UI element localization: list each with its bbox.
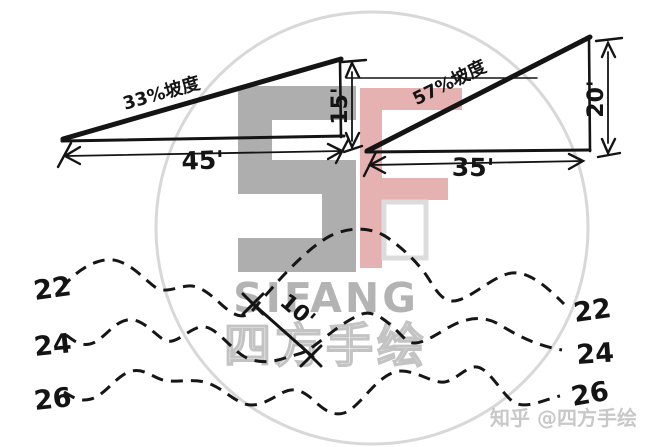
left-base-label: 45' bbox=[181, 145, 224, 175]
right-height-label: 20' bbox=[584, 80, 609, 117]
right-base-label: 35' bbox=[452, 153, 495, 183]
contour-label-right-24: 24 bbox=[575, 337, 615, 371]
sketch-canvas: S F SIFANG 四方手绘 33%坡度 45' 15' bbox=[0, 0, 654, 447]
watermark: S F SIFANG 四方手绘 bbox=[156, 12, 588, 444]
left-height-label: 15' bbox=[328, 87, 353, 124]
attribution-watermark: 知乎 @四方手绘 bbox=[490, 406, 637, 430]
left-height-dim-arrow-up bbox=[342, 60, 366, 77]
right-height-dim-arrow-down bbox=[598, 139, 620, 157]
contour-label-right-22: 22 bbox=[572, 293, 614, 329]
contour-label-left-24: 24 bbox=[32, 328, 73, 363]
contour-label-left-22: 22 bbox=[32, 271, 74, 307]
contour-label-left-26: 26 bbox=[32, 382, 73, 417]
left-triangle-base bbox=[62, 136, 344, 141]
right-triangle-base bbox=[366, 150, 590, 152]
watermark-brand-cn: 四方手绘 bbox=[224, 319, 428, 374]
hand-drawn-slope-diagram: S F SIFANG 四方手绘 33%坡度 45' 15' bbox=[0, 0, 654, 447]
logo-letter-f: F bbox=[360, 88, 462, 268]
right-height-dim-arrow-up bbox=[596, 38, 622, 57]
